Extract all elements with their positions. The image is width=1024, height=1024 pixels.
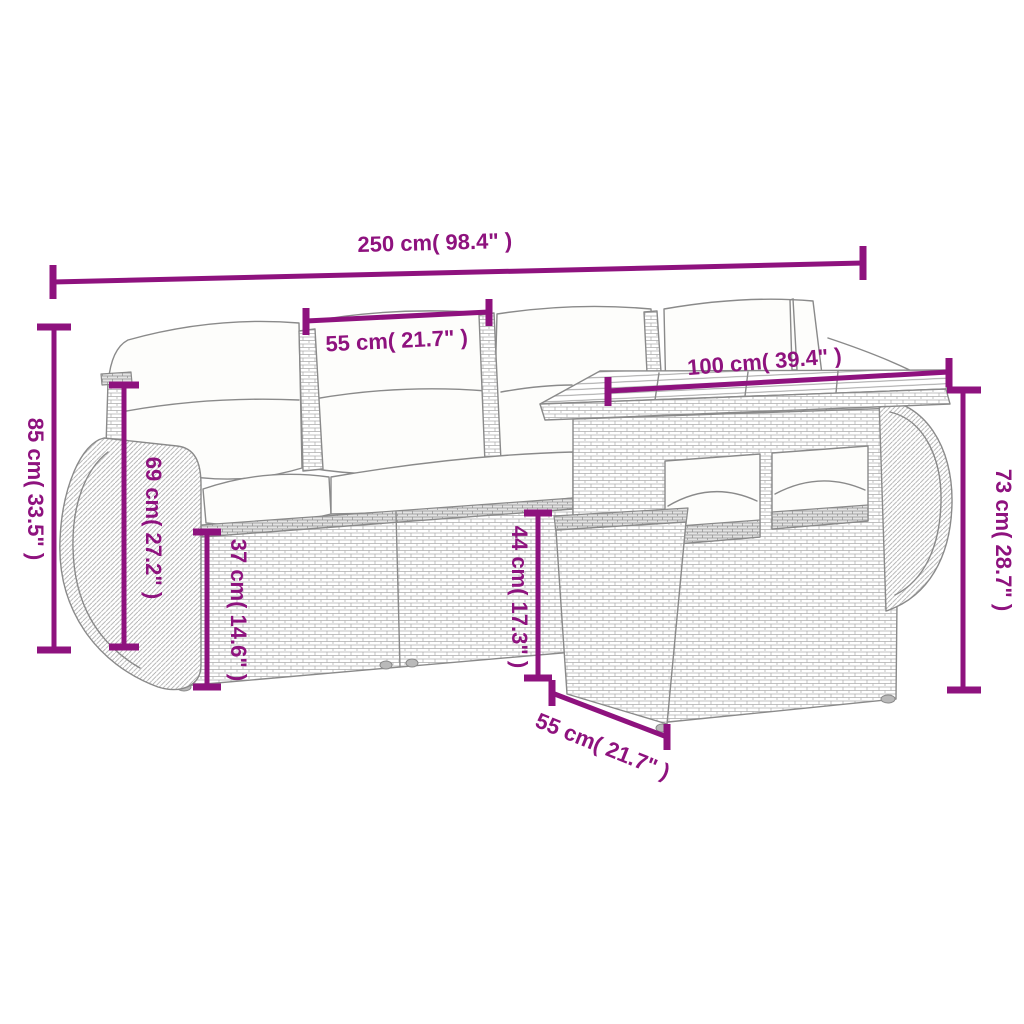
left-armrest [60,438,201,689]
sofa-foot [380,661,392,669]
dimension-diagram-svg: 250 cm( 98.4" ) 55 cm( 21.7" ) 100 cm( 3… [0,0,1024,1024]
sofa-foot [406,659,418,667]
ottoman [556,522,686,724]
dim-overall-width-label: 250 cm( 98.4" ) [357,228,512,257]
cushion-post [644,311,661,373]
dim-overall-width: 250 cm( 98.4" ) [53,228,863,299]
dim-table-height: 73 cm( 28.7" ) [947,390,1016,690]
dim-ottoman-height-label: 44 cm( 17.3" ) [507,526,532,669]
table-foot [881,695,895,703]
dim-overall-height: 85 cm( 33.5" ) [23,327,71,650]
dim-line [53,263,863,282]
dim-overall-height-label: 85 cm( 33.5" ) [23,418,48,561]
product-dimension-image: 250 cm( 98.4" ) 55 cm( 21.7" ) 100 cm( 3… [0,0,1024,1024]
dim-armrest-height-label: 69 cm( 27.2" ) [141,457,166,600]
dim-seat-height-label: 37 cm( 14.6" ) [226,539,251,682]
dim-table-height-label: 73 cm( 28.7" ) [991,469,1016,612]
